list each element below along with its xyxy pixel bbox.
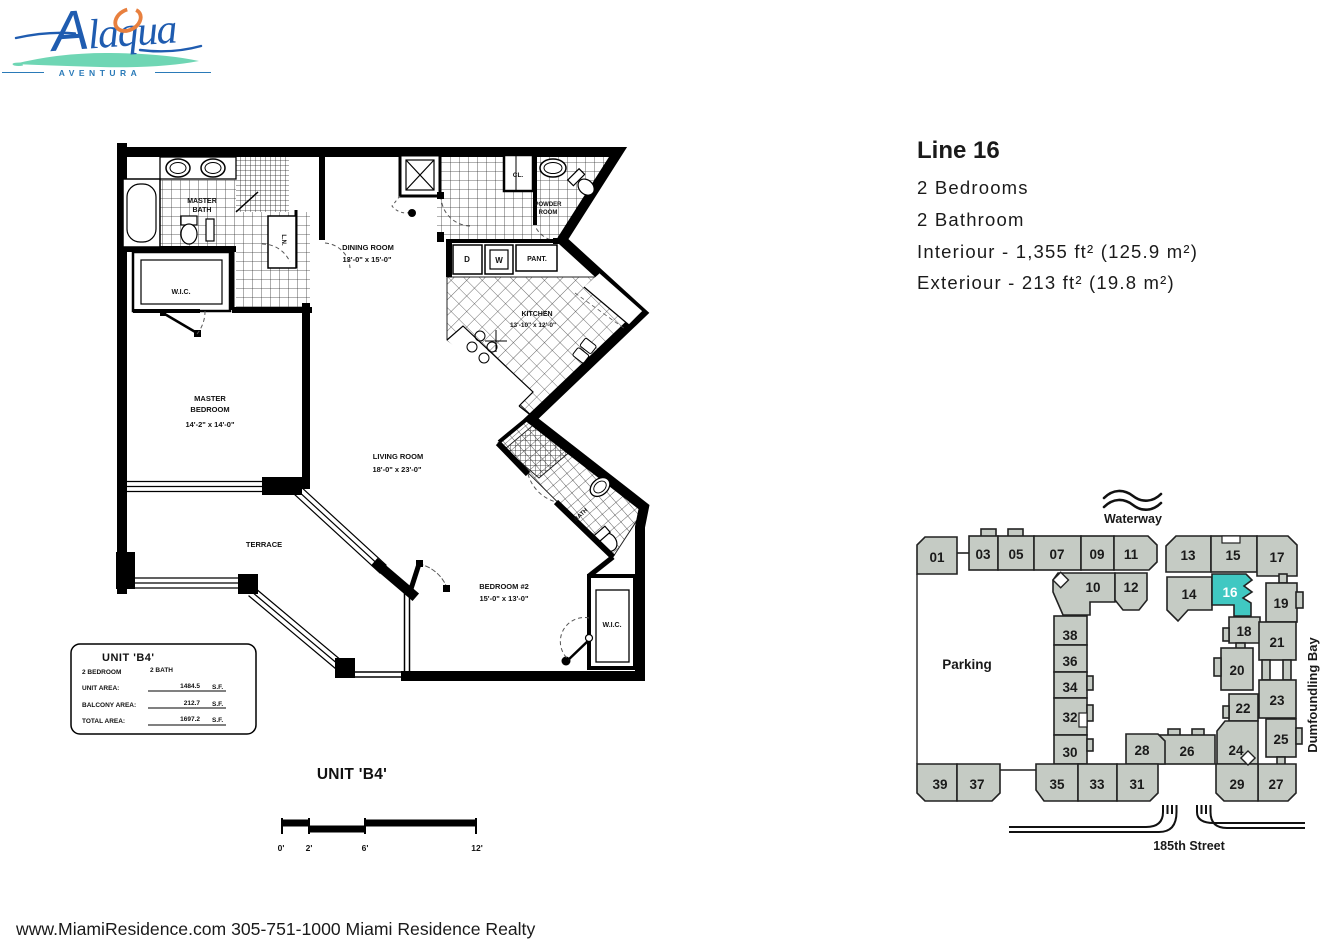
svg-text:2 Bedrooms: 2 Bedrooms [917, 177, 1029, 198]
svg-text:UNIT 'B4': UNIT 'B4' [102, 652, 155, 664]
svg-text:LIVING ROOM: LIVING ROOM [373, 452, 423, 461]
svg-text:13: 13 [1180, 548, 1196, 563]
svg-text:POWDER: POWDER [535, 202, 563, 208]
svg-text:14'-2" x 14'-0": 14'-2" x 14'-0" [185, 420, 234, 429]
svg-text:S.F.: S.F. [212, 701, 223, 708]
svg-text:10: 10 [1085, 580, 1100, 595]
svg-text:MASTER: MASTER [187, 198, 217, 205]
svg-text:18: 18 [1236, 624, 1252, 639]
svg-text:BATH: BATH [193, 207, 212, 214]
svg-text:KITCHEN: KITCHEN [521, 311, 552, 318]
svg-text:19: 19 [1273, 596, 1288, 611]
svg-text:03: 03 [975, 547, 991, 562]
svg-text:09: 09 [1089, 547, 1104, 562]
svg-text:2 BEDROOM: 2 BEDROOM [82, 669, 121, 676]
svg-text:24: 24 [1228, 743, 1244, 758]
svg-text:36: 36 [1062, 654, 1078, 669]
svg-text:212.7: 212.7 [184, 700, 201, 707]
svg-text:BEDROOM: BEDROOM [190, 405, 229, 414]
svg-text:Alaqua: Alaqua [46, 0, 178, 63]
svg-text:13'-0" x 15'-0": 13'-0" x 15'-0" [342, 255, 391, 264]
svg-text:S.F.: S.F. [212, 717, 223, 724]
svg-text:23: 23 [1269, 693, 1285, 708]
svg-text:UNIT 'B4': UNIT 'B4' [317, 766, 387, 783]
svg-text:D: D [464, 255, 470, 264]
svg-text:L.N.: L.N. [280, 234, 286, 246]
svg-text:MASTER: MASTER [194, 394, 226, 403]
svg-text:26: 26 [1179, 744, 1195, 759]
svg-text:ROOM: ROOM [539, 210, 558, 216]
svg-text:20: 20 [1229, 663, 1244, 678]
svg-text:Line 16: Line 16 [917, 137, 1000, 164]
svg-text:W: W [495, 256, 503, 265]
svg-text:CL.: CL. [513, 172, 524, 179]
svg-text:TOTAL AREA:: TOTAL AREA: [82, 718, 125, 725]
svg-text:Exteriour - 213 ft² (19.8 m²): Exteriour - 213 ft² (19.8 m²) [917, 272, 1175, 293]
svg-text:37: 37 [969, 777, 984, 792]
svg-text:2 Bathroom: 2 Bathroom [917, 209, 1025, 230]
svg-text:35: 35 [1049, 777, 1065, 792]
svg-text:Dumfoundling Bay: Dumfoundling Bay [1305, 636, 1320, 752]
svg-text:25: 25 [1273, 732, 1289, 747]
svg-text:2 BATH: 2 BATH [150, 667, 173, 674]
svg-text:38: 38 [1062, 628, 1078, 643]
svg-text:AVENTURA: AVENTURA [59, 68, 142, 78]
svg-text:Parking: Parking [942, 657, 992, 672]
svg-text:1697.2: 1697.2 [180, 716, 200, 723]
svg-text:34: 34 [1062, 680, 1078, 695]
svg-text:17: 17 [1269, 550, 1284, 565]
svg-text:12': 12' [471, 843, 482, 853]
svg-text:PANT.: PANT. [527, 256, 547, 263]
svg-text:01: 01 [929, 550, 945, 565]
svg-text:DINING ROOM: DINING ROOM [342, 243, 394, 252]
svg-text:32: 32 [1062, 710, 1077, 725]
svg-text:TERRACE: TERRACE [246, 540, 282, 549]
svg-text:www.MiamiResidence.com 305-751: www.MiamiResidence.com 305-751-1000 Miam… [15, 919, 535, 939]
svg-text:0': 0' [278, 843, 285, 853]
svg-text:UNIT AREA:: UNIT AREA: [82, 685, 119, 692]
svg-text:21: 21 [1269, 635, 1285, 650]
svg-text:Interiour - 1,355 ft² (125.9 m: Interiour - 1,355 ft² (125.9 m²) [917, 241, 1198, 262]
svg-text:33: 33 [1089, 777, 1105, 792]
svg-text:28: 28 [1134, 743, 1150, 758]
svg-text:18'-0" x 23'-0": 18'-0" x 23'-0" [372, 465, 421, 474]
svg-text:16: 16 [1222, 585, 1238, 600]
svg-text:185th Street: 185th Street [1153, 839, 1225, 853]
svg-text:2': 2' [306, 843, 313, 853]
svg-text:W.I.C.: W.I.C. [171, 289, 190, 296]
svg-text:14: 14 [1181, 587, 1197, 602]
svg-text:15'-0" x 13'-0": 15'-0" x 13'-0" [479, 594, 528, 603]
svg-text:6': 6' [362, 843, 369, 853]
svg-text:BALCONY AREA:: BALCONY AREA: [82, 702, 136, 709]
svg-text:1484.5: 1484.5 [180, 683, 200, 690]
svg-text:12: 12 [1123, 580, 1138, 595]
svg-text:27: 27 [1268, 777, 1283, 792]
svg-text:31: 31 [1129, 777, 1145, 792]
svg-text:07: 07 [1049, 547, 1064, 562]
svg-text:W.I.C.: W.I.C. [602, 622, 621, 629]
svg-text:05: 05 [1008, 547, 1024, 562]
svg-text:11: 11 [1124, 547, 1139, 562]
svg-text:Waterway: Waterway [1104, 512, 1162, 526]
svg-text:15: 15 [1225, 548, 1241, 563]
svg-text:S.F.: S.F. [212, 684, 223, 691]
svg-text:39: 39 [932, 777, 947, 792]
svg-text:29: 29 [1229, 777, 1244, 792]
svg-text:22: 22 [1235, 701, 1250, 716]
svg-text:BEDROOM #2: BEDROOM #2 [479, 582, 529, 591]
svg-text:13'-10" x 12'-0": 13'-10" x 12'-0" [510, 322, 556, 329]
svg-text:30: 30 [1062, 745, 1077, 760]
